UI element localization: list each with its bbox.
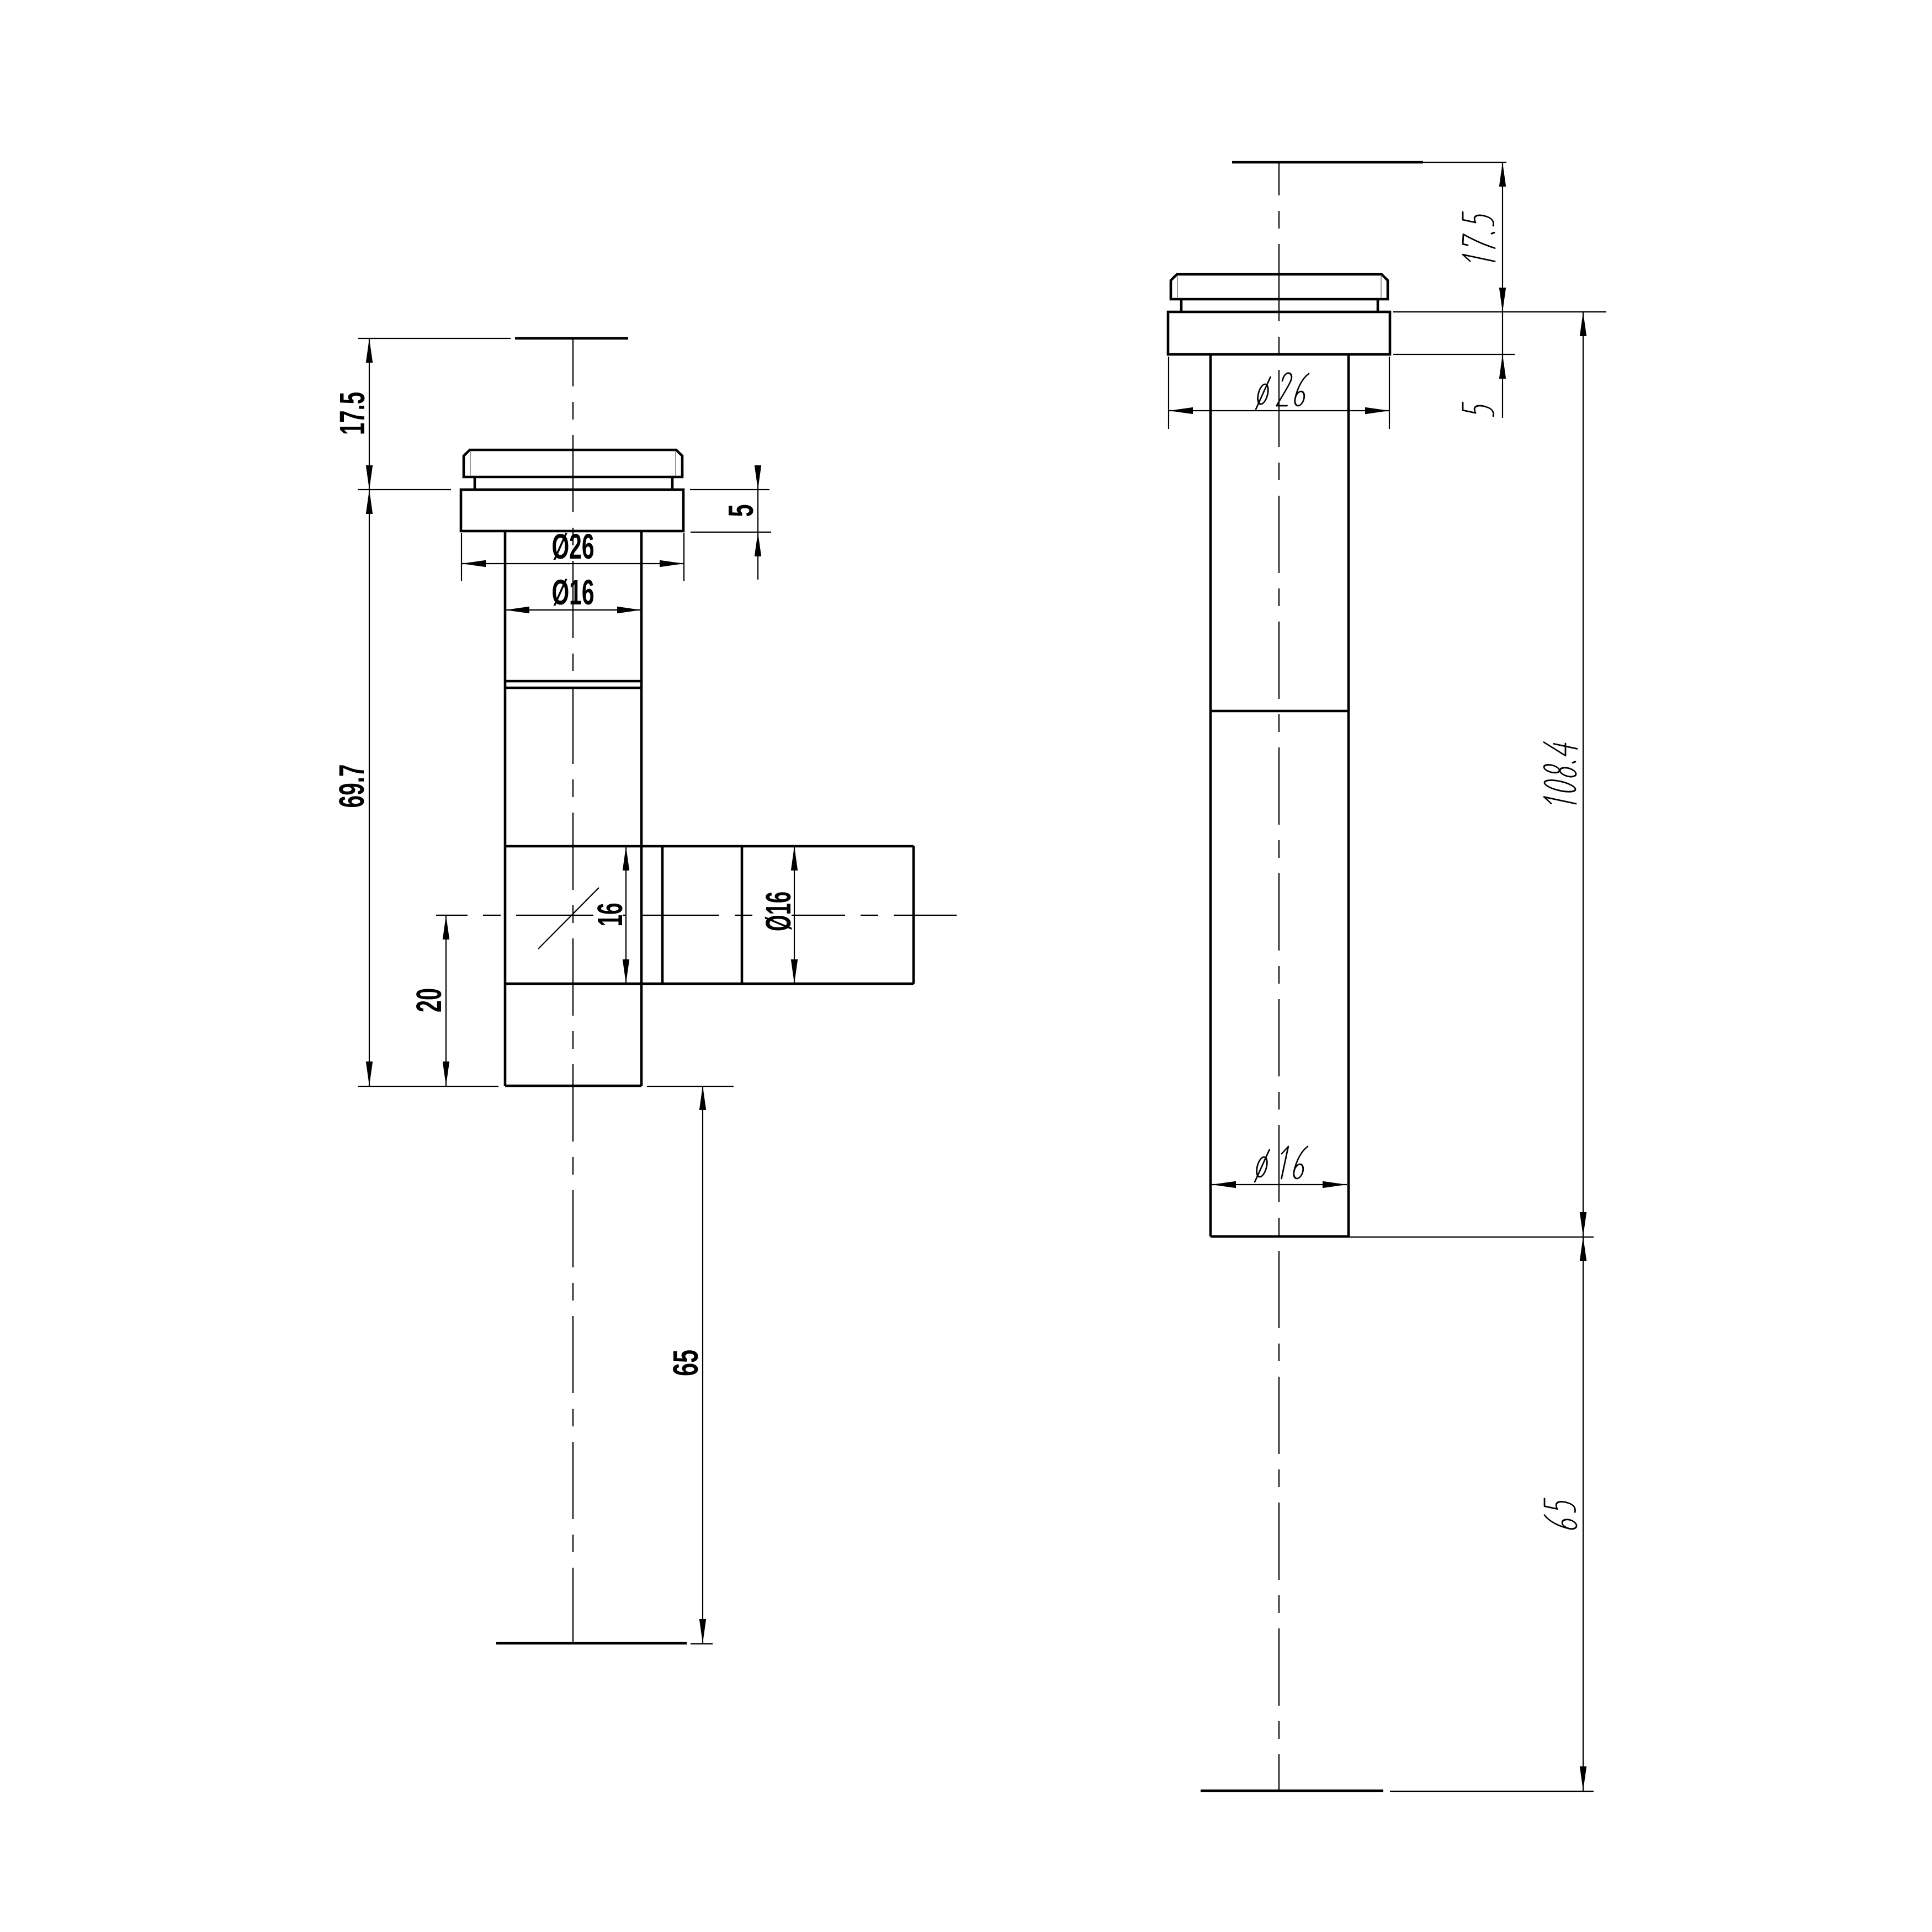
svg-text:5: 5 [721, 505, 761, 517]
svg-text:20: 20 [409, 988, 449, 1012]
svg-text:16: 16 [590, 903, 630, 927]
svg-text:17.5: 17.5 [332, 392, 372, 435]
svg-text:69.7: 69.7 [332, 765, 371, 808]
svg-text:Ø16: Ø16 [552, 572, 595, 612]
svg-text:65: 65 [666, 1350, 705, 1376]
svg-text:Ø16: Ø16 [758, 891, 798, 931]
svg-text:Ø26: Ø26 [552, 527, 595, 566]
